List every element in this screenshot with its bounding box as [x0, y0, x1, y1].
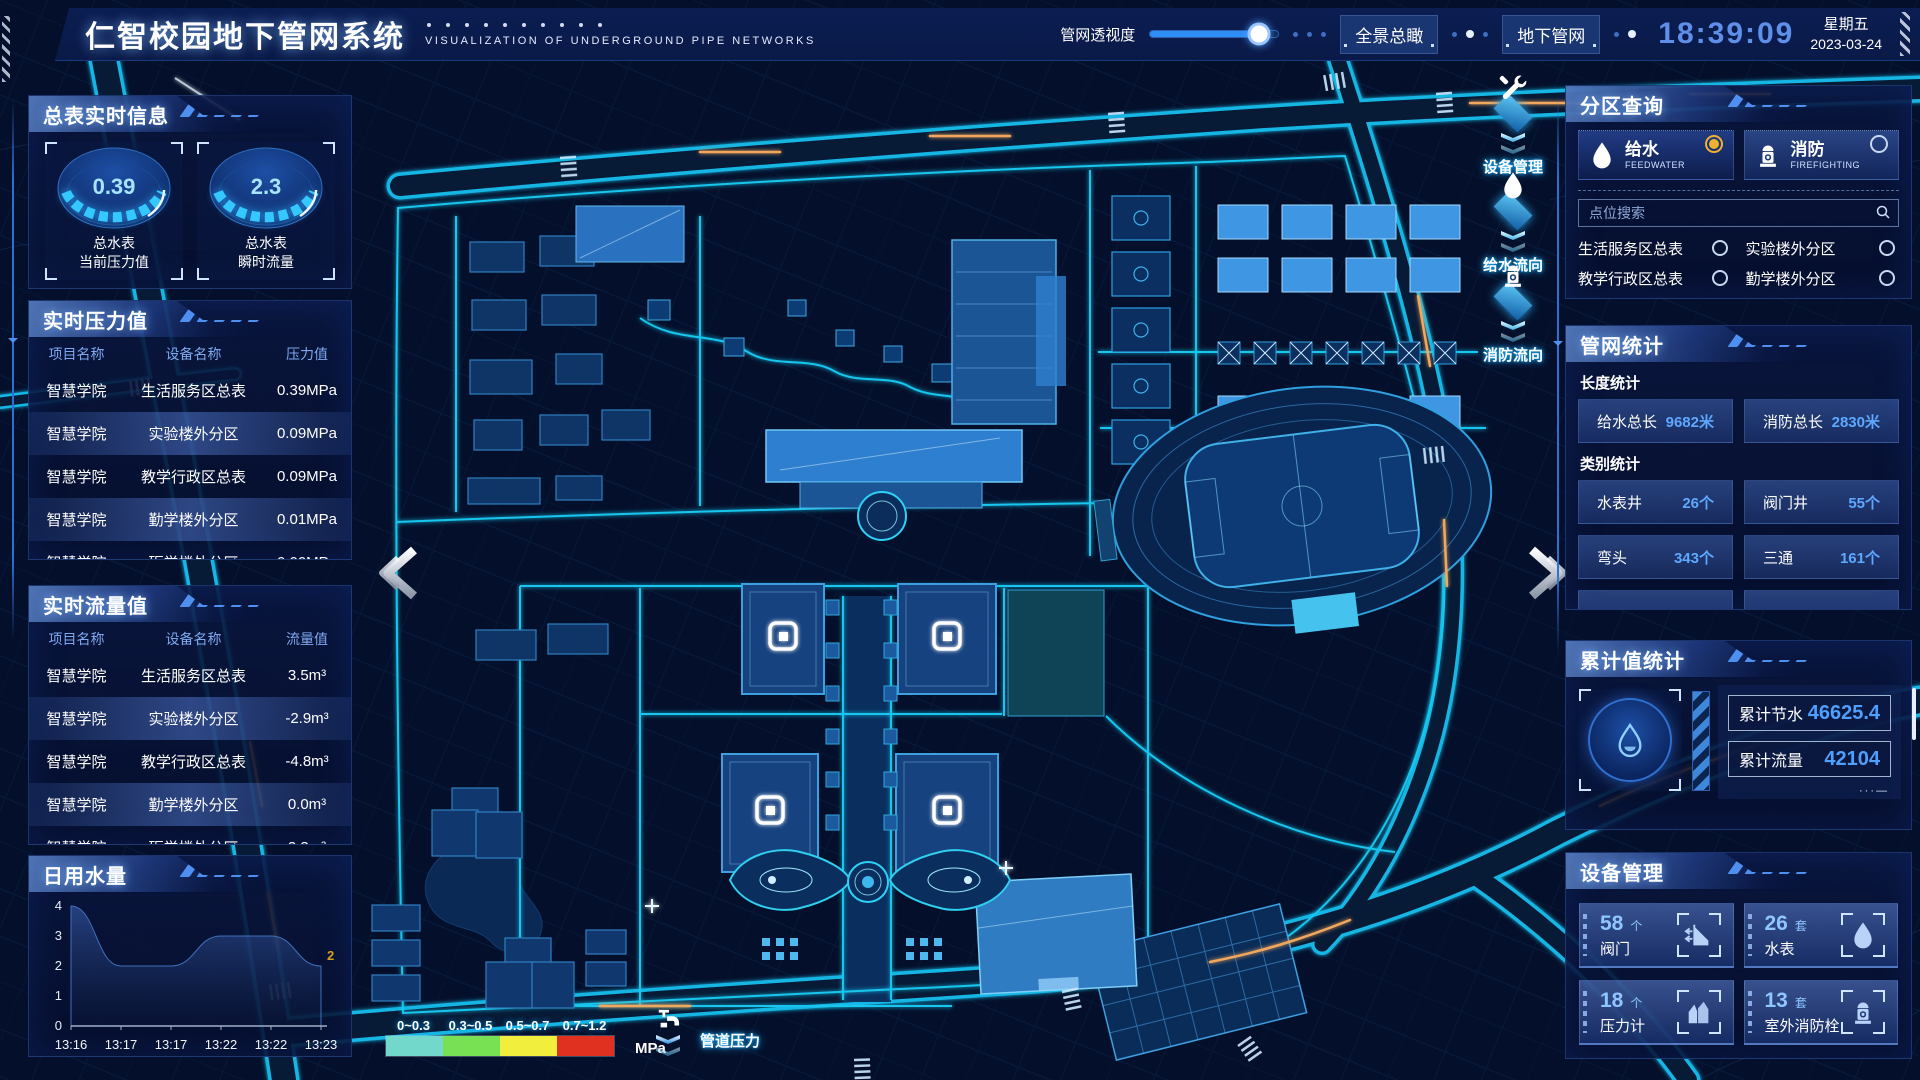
zone-item[interactable]: 实验楼外分区: [1746, 233, 1900, 263]
search-icon[interactable]: [1875, 204, 1891, 220]
legend-color: [386, 1036, 443, 1056]
flow-table: 项目名称设备名称流量值智慧学院生活服务区总表3.5m³智慧学院实验楼外分区-2.…: [29, 622, 351, 845]
legend-range: 0.3~0.5: [442, 1018, 499, 1033]
dots-decor: [1293, 32, 1326, 37]
device-card-压力计[interactable]: 18个 压力计: [1579, 980, 1734, 1045]
date: 2023-03-24: [1810, 35, 1882, 53]
zone-item-label: 宿舍区泵房: [1746, 298, 1821, 300]
zone-search: [1578, 199, 1899, 227]
cumulative-row: 累计节水46625.4: [1728, 695, 1891, 731]
svg-text:2: 2: [327, 948, 334, 963]
stat-chip: 消防总长2830米: [1744, 399, 1899, 443]
header-bar: 仁智校园地下管网系统 VISUALIZATION OF UNDERGROUND …: [55, 8, 1920, 61]
pressure-panel: 实时压力值 项目名称设备名称压力值智慧学院生活服务区总表0.39MPa智慧学院实…: [28, 300, 352, 560]
title-slashes: [184, 104, 262, 117]
pressure-legend: 0~0.30.3~0.50.5~0.70.7~1.2 MPa: [385, 1018, 615, 1057]
stat-chip: 阀门井55个: [1744, 480, 1899, 524]
water-drop-icon: [1589, 140, 1615, 170]
svg-text:13:16: 13:16: [55, 1037, 88, 1052]
water-drop-icon: [1588, 698, 1672, 782]
table-row: 智慧学院生活服务区总表0.39MPa: [29, 369, 351, 412]
zone-item[interactable]: 生活服务区总表: [1578, 233, 1732, 263]
hazard-stripe: [1692, 691, 1710, 791]
clock: 18:39:09 星期五 2023-03-24: [1658, 15, 1882, 53]
stat-name: 三通: [1763, 547, 1793, 568]
panel-title: 日用水量: [43, 860, 127, 889]
stat-name: 阀门井: [1763, 492, 1808, 513]
map-tool-0[interactable]: 设备管理: [1478, 72, 1548, 177]
time-display: 18:39:09: [1658, 17, 1794, 51]
cumulative-panel: 累计值统计 累计节水46625.4累计流量42104 ···—: [1565, 640, 1912, 830]
stat-chip: 弯头343个: [1578, 535, 1733, 579]
table-row: 智慧学院生活服务区总表3.5m³: [29, 654, 351, 697]
stat-name: 给水总长: [1597, 411, 1657, 432]
table-row: 智慧学院砺学楼外分区0.00MPa: [29, 541, 351, 560]
svg-text:2: 2: [55, 958, 62, 973]
radio-unselected[interactable]: [1879, 270, 1895, 286]
device-card-阀门[interactable]: 58个 阀门: [1579, 903, 1734, 968]
panel-title: 实时流量值: [43, 590, 148, 619]
search-input[interactable]: [1578, 199, 1899, 227]
gauge-label: 总水表当前压力值: [45, 234, 183, 272]
stat-value: 55个: [1848, 492, 1880, 513]
svg-text:0.39: 0.39: [93, 174, 136, 199]
svg-text:13:22: 13:22: [255, 1037, 288, 1052]
table-row: 智慧学院实验楼外分区0.09MPa: [29, 412, 351, 455]
zone-tab-0[interactable]: 给水 FEEDWATER: [1578, 130, 1734, 180]
wrench-icon: [1498, 72, 1528, 102]
zone-item-label: 教学行政区总表: [1578, 268, 1683, 289]
legend-color: [443, 1036, 500, 1056]
flow-panel: 实时流量值 项目名称设备名称流量值智慧学院生活服务区总表3.5m³智慧学院实验楼…: [28, 585, 352, 845]
title-slashes: [184, 309, 262, 322]
device-count: 58个: [1600, 912, 1642, 936]
device-count: 13套: [1765, 989, 1807, 1013]
tab-sublabel: FIREFIGHTING: [1791, 160, 1861, 170]
panorama-button[interactable]: 全景总瞰: [1340, 15, 1438, 54]
radio-unselected[interactable]: [1712, 270, 1728, 286]
zone-query-panel: 分区查询 给水 FEEDWATER 消防 FIREFIGHTING 生活服务区总…: [1565, 85, 1912, 299]
device-card-室外消防栓[interactable]: 13套 室外消防栓: [1744, 980, 1899, 1045]
zone-item-label: 砺学楼外分区: [1578, 298, 1668, 300]
zone-item-label: 勤学楼外分区: [1746, 268, 1836, 289]
water-drop-icon: [1841, 913, 1885, 957]
zone-item[interactable]: 教学行政区总表: [1578, 263, 1732, 293]
svg-text:13:17: 13:17: [105, 1037, 138, 1052]
title-slashes: [184, 864, 262, 877]
slider-thumb[interactable]: [1248, 23, 1271, 46]
edge-dashes: [2, 16, 10, 82]
device-count: 26套: [1765, 912, 1807, 936]
valve-icon: [1677, 913, 1721, 957]
legend-range: 0.5~0.7: [499, 1018, 556, 1033]
legend-range: 0.7~1.2: [556, 1018, 613, 1033]
app-subtitle-wrap: VISUALIZATION OF UNDERGROUND PIPE NETWOR…: [425, 21, 816, 47]
water-badge: [1579, 689, 1681, 791]
radio-unselected[interactable]: [1712, 240, 1728, 256]
svg-text:13:22: 13:22: [205, 1037, 238, 1052]
device-label: 阀门: [1600, 938, 1630, 959]
svg-text:0: 0: [55, 1018, 62, 1033]
device-count: 18个: [1600, 989, 1642, 1013]
pan-left-arrow[interactable]: [368, 542, 424, 604]
table-row: 智慧学院勤学楼外分区0.01MPa: [29, 498, 351, 541]
stat-value: 343个: [1674, 547, 1714, 568]
pressure-table: 项目名称设备名称压力值智慧学院生活服务区总表0.39MPa智慧学院实验楼外分区0…: [29, 337, 351, 560]
zone-item-label: 实验楼外分区: [1746, 238, 1836, 259]
title-slashes: [1732, 94, 1810, 107]
daily-water-panel: 日用水量 0123413:1613:1713:1713:2213:2213:23…: [28, 855, 352, 1057]
title-slashes: [184, 594, 262, 607]
zone-item[interactable]: 勤学楼外分区: [1746, 263, 1900, 293]
pipe-stats-panel: 管网统计 长度统计 给水总长9682米消防总长2830米 类别统计 水表井26个…: [1565, 325, 1912, 610]
stat-name: 消防总长: [1763, 411, 1823, 432]
gauge-label: 总水表瞬时流量: [197, 234, 335, 272]
weekday: 星期五: [1824, 15, 1869, 35]
dashboard-root: 仁智校园地下管网系统 VISUALIZATION OF UNDERGROUND …: [0, 0, 1920, 1080]
device-card-水表[interactable]: 26套 水表: [1744, 903, 1899, 968]
table-row: 智慧学院砺学楼外分区2.3m³: [29, 826, 351, 845]
pressure-gauge-icon: [1677, 990, 1721, 1034]
table-row: 智慧学院实验楼外分区-2.9m³: [29, 697, 351, 740]
right-rail: [1557, 95, 1559, 655]
stat-value: 2830米: [1832, 411, 1880, 432]
dashed-separator: [1578, 190, 1899, 191]
panel-title: 累计值统计: [1580, 645, 1685, 674]
device-cards: 58个 阀门 26套 水表 18个 压力计 13套 室外消防栓: [1566, 889, 1911, 1045]
daily-water-chart: 0123413:1613:1713:1713:2213:2213:232: [33, 896, 347, 1056]
zone-item-list: 生活服务区总表 实验楼外分区 教学行政区总表 勤学楼外分区 砺学楼外分区 宿舍区…: [1566, 227, 1911, 299]
underground-pipes-button[interactable]: 地下管网: [1502, 15, 1600, 54]
cumulative-body: 累计节水46625.4累计流量42104 ···—: [1566, 677, 1911, 817]
stat-value: 26个: [1682, 492, 1714, 513]
stat-groups: 长度统计 给水总长9682米消防总长2830米 类别统计 水表井26个阀门井55…: [1566, 362, 1911, 610]
zone-item[interactable]: 宿舍区泵房: [1746, 293, 1900, 299]
legend-range: 0~0.3: [385, 1018, 442, 1033]
panel-title: 分区查询: [1580, 90, 1664, 119]
legend-color: [557, 1036, 614, 1056]
radio-unselected[interactable]: [1879, 240, 1895, 256]
table-row: 智慧学院教学行政区总表-4.8m³: [29, 740, 351, 783]
left-rail: [12, 100, 14, 640]
panel-title: 总表实时信息: [43, 100, 169, 129]
header-dots: [427, 23, 602, 27]
table-row: 智慧学院教学行政区总表0.09MPa: [29, 455, 351, 498]
table-row: 智慧学院勤学楼外分区0.0m³: [29, 783, 351, 826]
dash-decor: ···—: [1859, 785, 1889, 797]
svg-text:3: 3: [55, 928, 62, 943]
water-drop-icon: [1500, 170, 1526, 200]
hydrant-icon: [1500, 260, 1526, 290]
stat-value: 9682米: [1666, 411, 1714, 432]
hydrant-icon: [1841, 990, 1885, 1034]
radio-unselected[interactable]: [1870, 135, 1888, 153]
table-header: 项目名称设备名称压力值: [29, 339, 351, 369]
panel-title: 实时压力值: [43, 305, 148, 334]
pipe-pressure-label: 管道压力: [700, 1030, 760, 1051]
device-label: 水表: [1765, 938, 1795, 959]
svg-text:13:23: 13:23: [305, 1037, 338, 1052]
stat-chip-clipped: [1578, 590, 1733, 610]
panel-title: 设备管理: [1580, 857, 1664, 886]
hazard-stripe: [1900, 12, 1910, 56]
legend-color: [500, 1036, 557, 1056]
tab-label: 消防: [1791, 140, 1861, 160]
stat-chip: 水表井26个: [1578, 480, 1733, 524]
zone-item-label: 生活服务区总表: [1578, 238, 1683, 259]
title-slashes: [1732, 649, 1810, 662]
app-title: 仁智校园地下管网系统: [85, 12, 405, 56]
dots-decor: [1614, 30, 1636, 38]
stat-group-label: 类别统计: [1566, 443, 1911, 480]
meter-info-panel: 总表实时信息 0.39 总水表当前压力值 2.3 总水表瞬时流量: [28, 95, 352, 289]
tab-label: 给水: [1625, 140, 1685, 160]
svg-text:1: 1: [55, 988, 62, 1003]
stat-name: 弯头: [1597, 547, 1627, 568]
scrollbar-thumb[interactable]: [1912, 688, 1916, 740]
stat-name: 水表井: [1597, 492, 1642, 513]
table-header: 项目名称设备名称流量值: [29, 624, 351, 654]
svg-text:2.3: 2.3: [251, 174, 282, 199]
pipe-pressure-marker[interactable]: [655, 1008, 681, 1056]
stat-chip: 三通161个: [1744, 535, 1899, 579]
map-tool-2[interactable]: 消防流向: [1478, 260, 1548, 365]
map-tool-label: 消防流向: [1483, 344, 1543, 365]
svg-text:13:17: 13:17: [155, 1037, 188, 1052]
device-label: 压力计: [1600, 1015, 1645, 1036]
panel-title: 管网统计: [1580, 330, 1664, 359]
title-slashes: [1732, 861, 1810, 874]
dots-decor: [1452, 30, 1488, 38]
device-mgmt-panel: 设备管理 58个 阀门 26套 水表 18个 压力计 13套 室外消防栓: [1565, 852, 1912, 1059]
device-label: 室外消防栓: [1765, 1015, 1840, 1036]
svg-text:4: 4: [55, 898, 62, 913]
hydrant-icon: [1755, 140, 1781, 170]
stat-chip: 给水总长9682米: [1578, 399, 1733, 443]
stat-chip-clipped: [1744, 590, 1899, 610]
pipe-opacity-label: 管网透视度: [1060, 24, 1135, 45]
zone-tab-1[interactable]: 消防 FIREFIGHTING: [1744, 130, 1900, 180]
title-slashes: [1732, 334, 1810, 347]
stat-group-label: 长度统计: [1566, 362, 1911, 399]
zone-tabs: 给水 FEEDWATER 消防 FIREFIGHTING: [1566, 122, 1911, 180]
pipe-opacity-slider[interactable]: [1149, 30, 1279, 38]
faucet-icon: [655, 1008, 681, 1032]
tab-sublabel: FEEDWATER: [1625, 160, 1685, 170]
radio-selected[interactable]: [1705, 135, 1723, 153]
gauge-0: 0.39 总水表当前压力值: [45, 142, 183, 280]
cumulative-values: 累计节水46625.4累计流量42104 ···—: [1718, 685, 1901, 799]
zone-item[interactable]: 砺学楼外分区: [1578, 293, 1732, 299]
gauge-row: 0.39 总水表当前压力值 2.3 总水表瞬时流量: [29, 132, 351, 280]
stat-value: 161个: [1840, 547, 1880, 568]
app-subtitle: VISUALIZATION OF UNDERGROUND PIPE NETWOR…: [425, 35, 816, 47]
cumulative-row: 累计流量42104: [1728, 741, 1891, 777]
gauge-1: 2.3 总水表瞬时流量: [197, 142, 335, 280]
